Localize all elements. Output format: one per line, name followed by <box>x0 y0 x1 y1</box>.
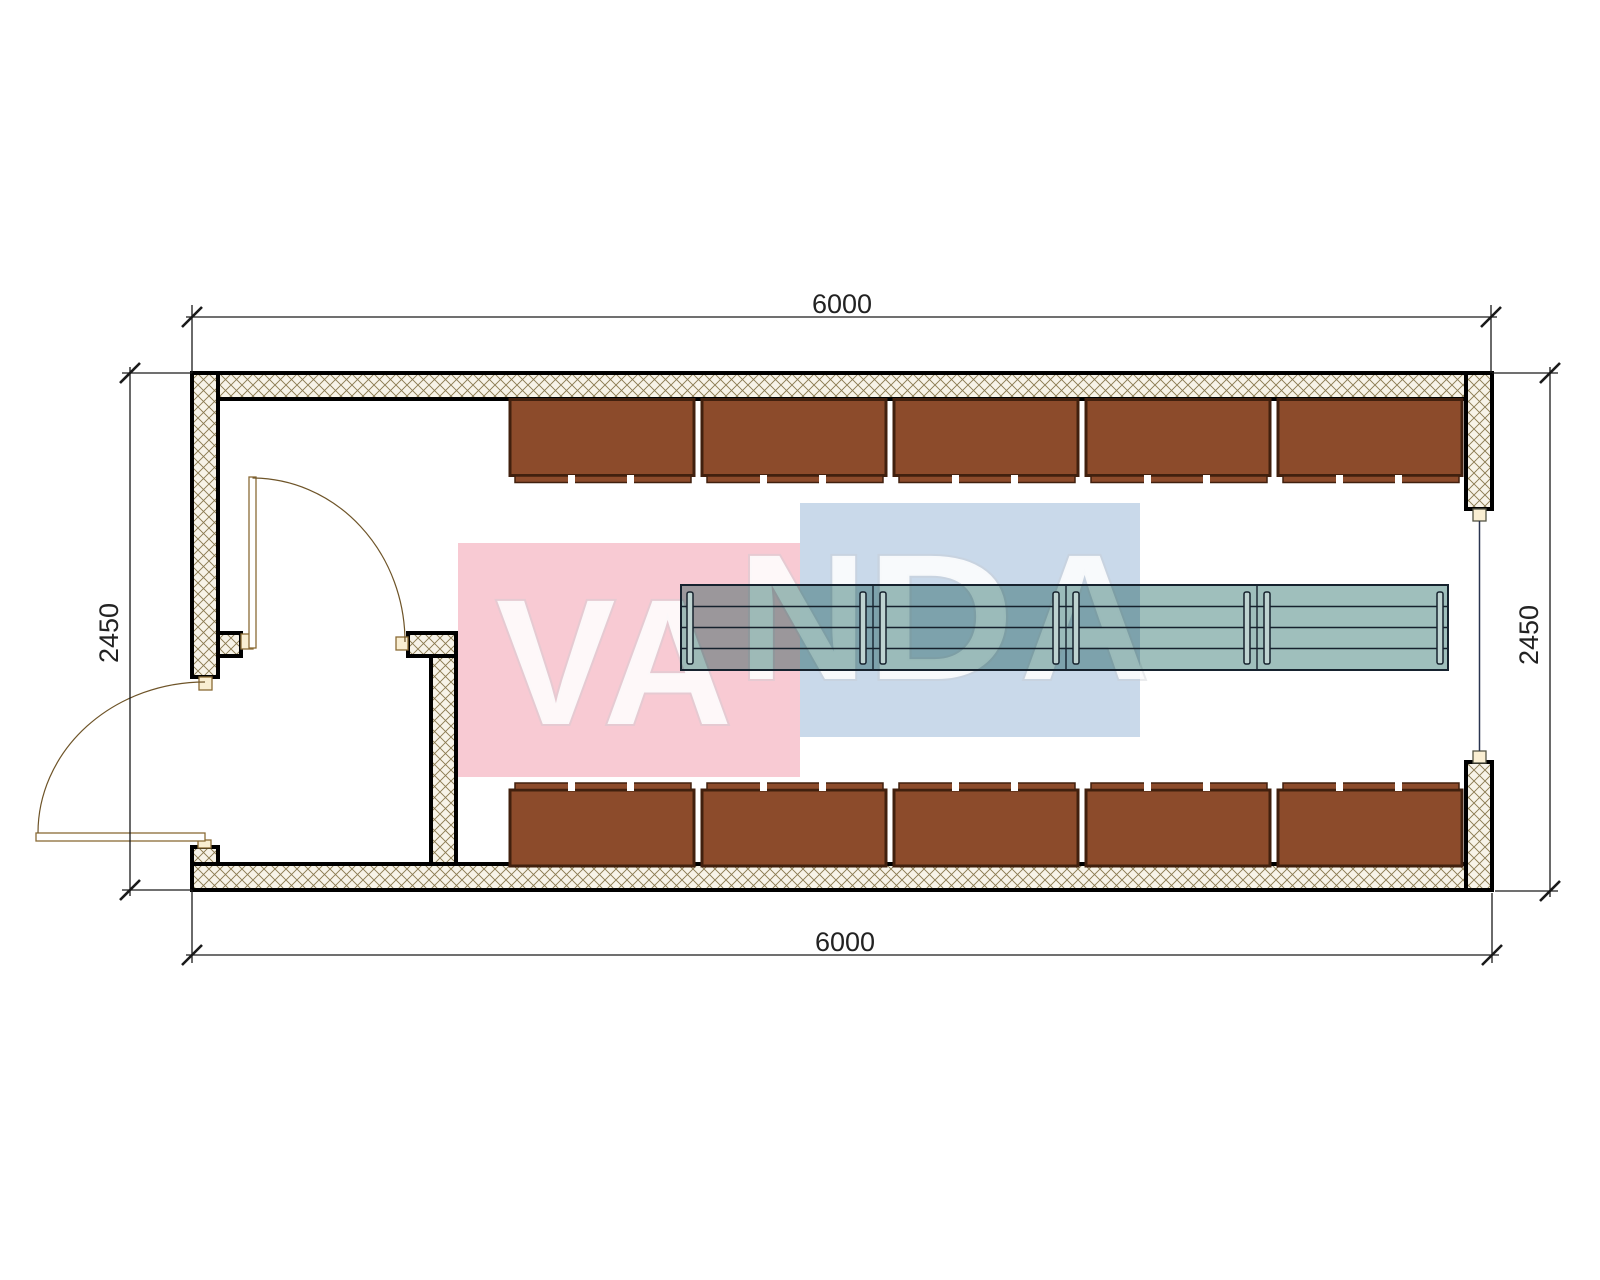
svg-text:2450: 2450 <box>94 603 124 663</box>
svg-text:V: V <box>496 562 615 762</box>
svg-text:6000: 6000 <box>815 927 875 957</box>
svg-text:2450: 2450 <box>1514 605 1544 665</box>
svg-text:6000: 6000 <box>812 289 872 319</box>
